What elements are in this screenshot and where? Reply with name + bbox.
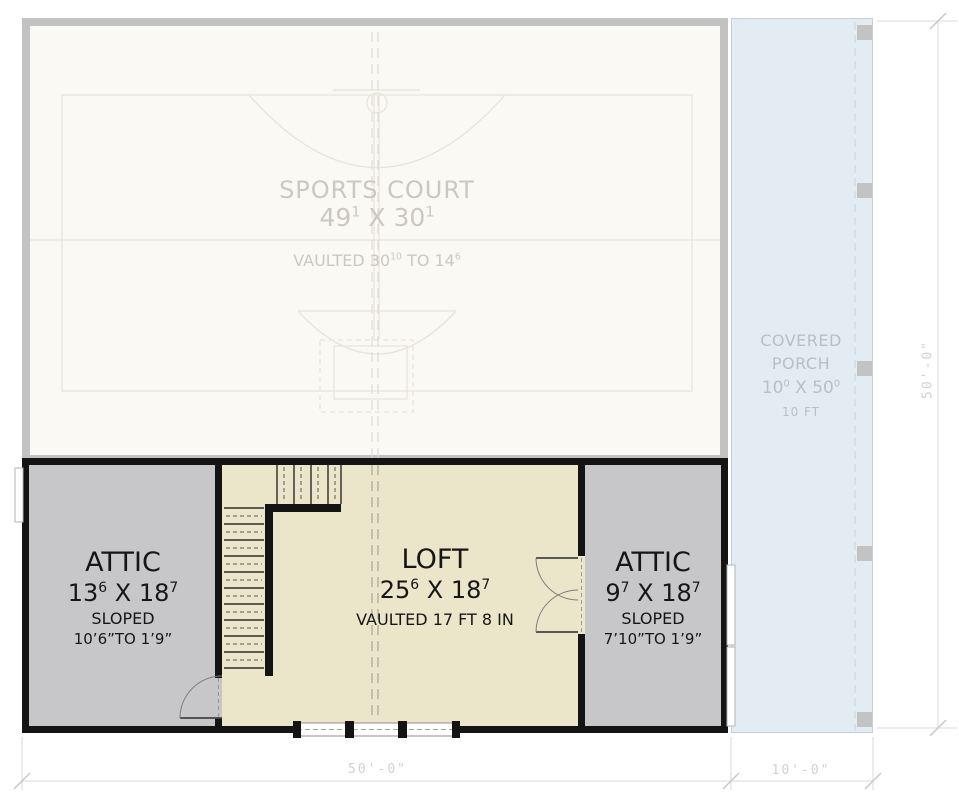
dim-mid: X 18 <box>419 576 481 604</box>
dim-sup2: 0 <box>834 378 840 389</box>
loft-label: LOFT <box>335 546 535 574</box>
attic-left-dimensions: 136 X 187 <box>40 581 206 606</box>
dim-mid: X 18 <box>630 579 692 607</box>
attic-right-height-note: 7’10”TO 1’9” <box>587 632 719 648</box>
dim-pre: 49 <box>319 203 351 232</box>
dim-sup1: 6 <box>410 577 419 593</box>
loft-dimensions: 256 X 187 <box>335 578 535 603</box>
sports-court-area <box>22 18 728 463</box>
attic-left-height-note: 10’6”TO 1’9” <box>40 632 206 648</box>
dim-mid: X 30 <box>360 203 425 232</box>
attic-right-label: ATTIC <box>587 549 719 577</box>
dim-pre: 9 <box>605 579 620 607</box>
dim-bottom-main: 50'-0" <box>300 762 455 777</box>
attic-left-sloped-note: SLOPED <box>40 611 206 628</box>
loft-vault-note: VAULTED 17 FT 8 IN <box>335 612 535 629</box>
note-mid: TO 14 <box>402 251 455 270</box>
floor-plan-canvas: SPORTS COURT 491 X 301 VAULTED 3010 TO 1… <box>0 0 959 800</box>
porch-height-note: 10 FT <box>736 405 866 419</box>
sports-court-dimensions: 491 X 301 <box>252 204 502 232</box>
dim-sup1: 6 <box>98 580 107 596</box>
dim-right-side: 50'-0" <box>921 320 936 420</box>
dim-bottom-porch: 10'-0" <box>745 763 857 778</box>
dim-pre: 10 <box>762 378 784 398</box>
attic-left-label: ATTIC <box>40 549 206 577</box>
dim-mid: X 50 <box>790 378 834 398</box>
dim-sup2: 7 <box>692 580 701 596</box>
porch-label-line2: PORCH <box>736 355 866 373</box>
dim-mid: X 18 <box>107 579 169 607</box>
sports-court-vault-note: VAULTED 3010 TO 146 <box>252 252 502 270</box>
sports-court-label: SPORTS COURT <box>252 177 502 203</box>
attic-right-dimensions: 97 X 187 <box>587 581 719 606</box>
note-sup2: 6 <box>455 252 461 263</box>
dim-sup1: 7 <box>621 580 630 596</box>
dim-sup2: 1 <box>425 205 434 221</box>
porch-dimensions: 100 X 500 <box>736 379 866 398</box>
attic-right-sloped-note: SLOPED <box>587 611 719 628</box>
dim-sup2: 7 <box>169 580 178 596</box>
porch-label-line1: COVERED <box>736 332 866 350</box>
dim-pre: 25 <box>380 576 411 604</box>
dim-pre: 13 <box>68 579 99 607</box>
note-pre: VAULTED 30 <box>293 251 390 270</box>
covered-porch-area <box>731 18 873 733</box>
dim-sup2: 7 <box>481 577 490 593</box>
note-sup1: 10 <box>390 252 402 263</box>
